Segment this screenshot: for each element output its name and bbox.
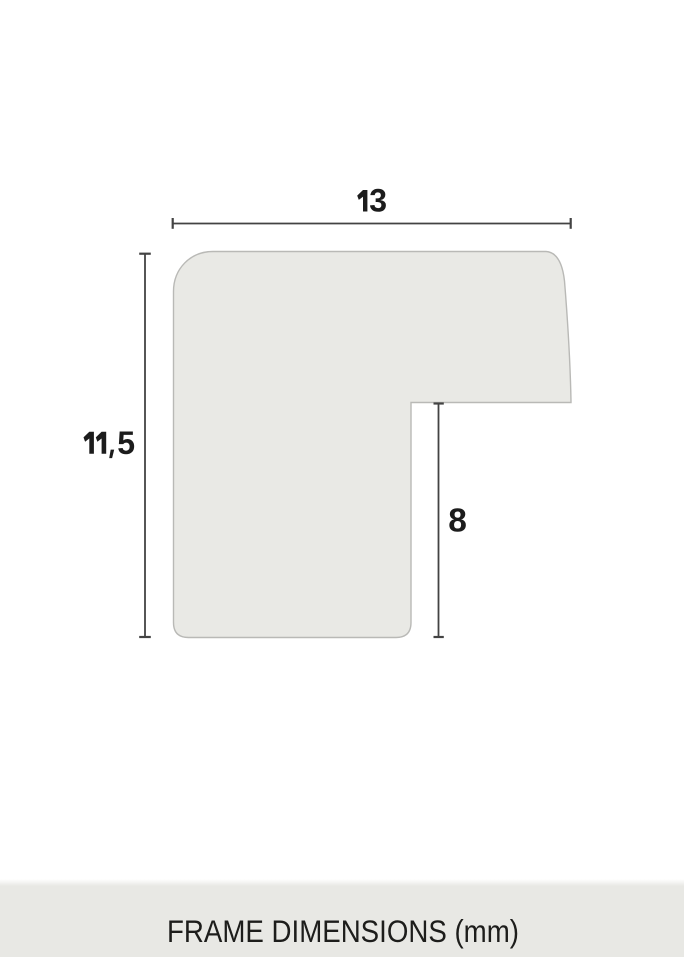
svg-text:8: 8 [448, 503, 467, 540]
svg-text:5: 5 [117, 425, 135, 461]
svg-text:FRAME DIMENSIONS (mm): FRAME DIMENSIONS (mm) [167, 913, 519, 949]
svg-text:3: 3 [369, 183, 387, 219]
